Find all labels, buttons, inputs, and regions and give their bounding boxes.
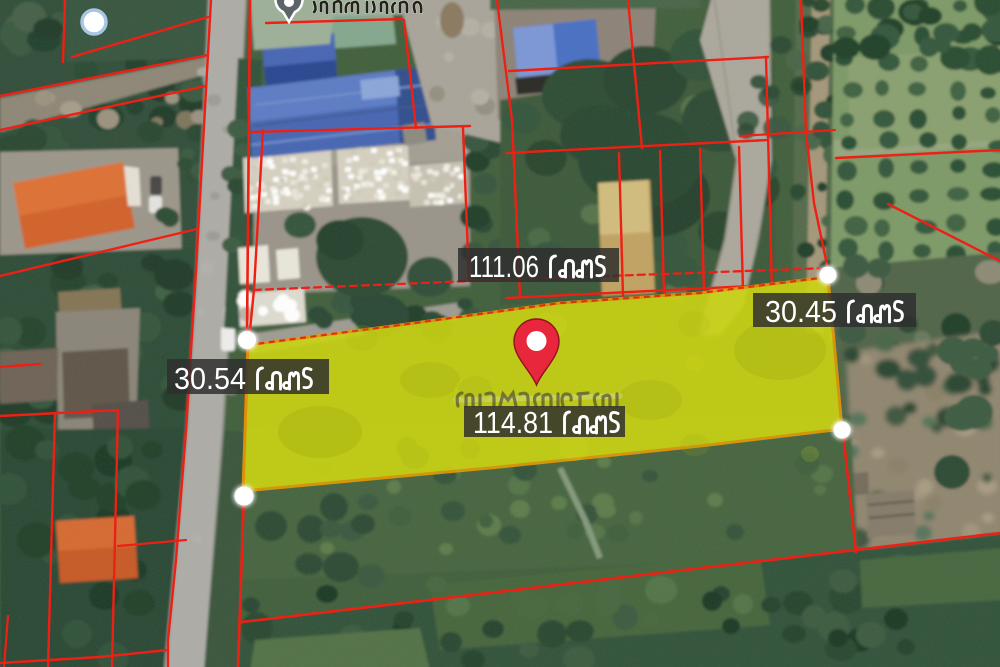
svg-text:111.06: 111.06	[469, 249, 539, 284]
svg-text:30.54: 30.54	[174, 361, 246, 396]
svg-text:30.45: 30.45	[765, 294, 837, 329]
svg-text:114.81: 114.81	[473, 405, 553, 440]
